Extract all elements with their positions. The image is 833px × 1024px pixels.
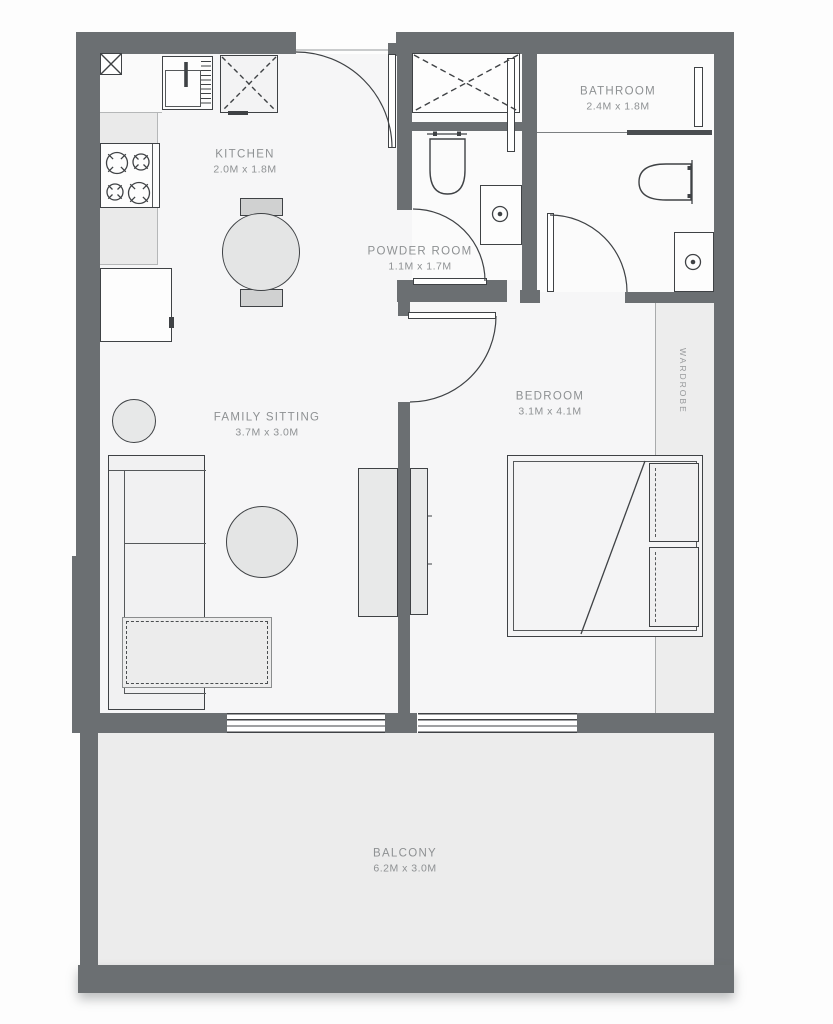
wall-powder-bath-shared xyxy=(522,54,537,297)
room-title: BEDROOM xyxy=(516,391,585,403)
bathroom-counter-line xyxy=(537,132,627,133)
sliding-window-bedroom xyxy=(418,713,577,733)
pillow-icon xyxy=(649,547,699,627)
room-dims: 2.0M x 1.8M xyxy=(213,164,276,176)
column-icon xyxy=(100,53,122,75)
bathroom-label: BATHROOM 2.4M x 1.8M xyxy=(580,86,656,113)
wall-powder-left xyxy=(397,54,412,210)
wall-junction-block xyxy=(385,713,417,733)
wall-bedroom-top-left xyxy=(520,290,540,303)
kitchen-label: KITCHEN 2.0M x 1.8M xyxy=(213,149,276,176)
washing-machine-handle xyxy=(169,317,174,328)
powder-basin-cabinet xyxy=(480,185,522,245)
wall-top-right xyxy=(396,32,734,54)
bathroom-door-leaf xyxy=(547,213,554,292)
dining-table-icon xyxy=(222,213,300,291)
tv-unit-bedroom xyxy=(410,468,428,615)
wall-family-bottom xyxy=(72,713,227,733)
bed-icon xyxy=(507,455,703,637)
coffee-table-icon xyxy=(226,506,298,578)
wall-left-upper xyxy=(76,32,100,556)
bath-basin-cabinet xyxy=(674,232,714,292)
powder-room-label: POWDER ROOM 1.1M x 1.7M xyxy=(367,246,472,273)
rug-icon xyxy=(122,617,272,688)
wall-top-left xyxy=(76,32,296,54)
sink-basin xyxy=(165,70,201,107)
room-title: BALCONY xyxy=(373,848,437,860)
drainboard-icon xyxy=(201,61,211,107)
bedroom-door-leaf xyxy=(408,312,496,319)
room-title: BATHROOM xyxy=(580,86,656,98)
wall-shower-partition xyxy=(400,122,522,131)
wall-bedroom-top-right xyxy=(625,292,714,303)
wall-divider-main xyxy=(398,402,410,713)
sliding-window-family xyxy=(227,713,385,733)
pillow-icon xyxy=(649,463,699,542)
entry-threshold-line xyxy=(296,49,389,51)
wall-bedroom-bottom xyxy=(577,713,714,733)
refrigerator-icon xyxy=(220,55,278,113)
shower-glass-icon xyxy=(507,58,515,152)
room-title: POWDER ROOM xyxy=(367,246,472,258)
wall-right xyxy=(714,32,734,993)
mirror-icon xyxy=(694,67,703,127)
room-dims: 6.2M x 3.0M xyxy=(373,863,437,875)
room-dims: 1.1M x 1.7M xyxy=(367,261,472,273)
balcony-label: BALCONY 6.2M x 3.0M xyxy=(373,848,437,875)
bathroom-shelf xyxy=(627,130,712,135)
kitchen-sink-unit xyxy=(162,56,213,110)
wall-balcony-left xyxy=(80,733,98,965)
shower-tray-icon xyxy=(412,53,520,113)
room-dims: 3.7M x 3.0M xyxy=(214,427,321,439)
floor-plan: KITCHEN 2.0M x 1.8M POWDER ROOM 1.1M x 1… xyxy=(0,0,833,1024)
wardrobe-label: WARDROBE xyxy=(678,348,688,414)
bedroom-label: BEDROOM 3.1M x 4.1M xyxy=(516,391,585,418)
entry-door-leaf xyxy=(388,54,396,148)
room-title: KITCHEN xyxy=(213,149,276,161)
washing-machine-icon xyxy=(100,268,172,342)
wall-bottom xyxy=(78,965,734,993)
side-table-icon xyxy=(112,399,156,443)
dining-seat-bottom xyxy=(240,289,283,307)
tv-unit-family xyxy=(358,468,398,617)
stove-icon xyxy=(100,143,160,208)
powder-door-leaf xyxy=(413,278,487,285)
room-dims: 3.1M x 4.1M xyxy=(516,406,585,418)
room-title: FAMILY SITTING xyxy=(214,412,321,424)
wall-left-lower xyxy=(72,556,100,733)
refrigerator-vent xyxy=(228,111,248,115)
family-sitting-label: FAMILY SITTING 3.7M x 3.0M xyxy=(214,412,321,439)
room-dims: 2.4M x 1.8M xyxy=(580,101,656,113)
